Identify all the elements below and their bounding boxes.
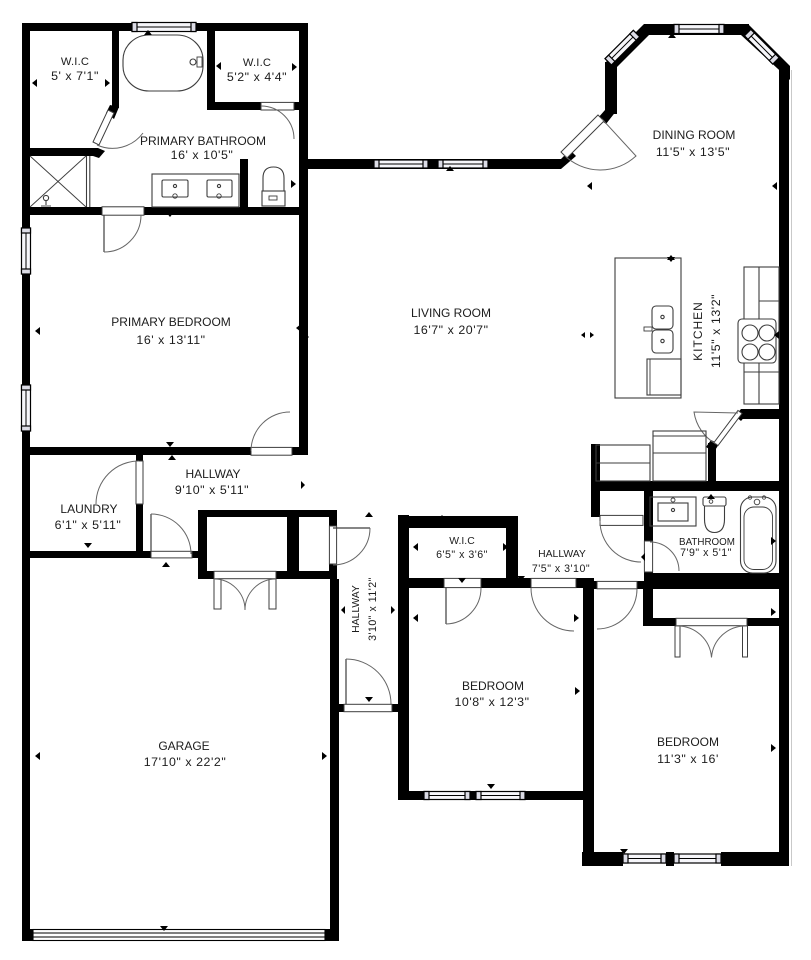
svg-text:W.I.C: W.I.C bbox=[243, 57, 271, 69]
svg-text:17'10" x 22'2": 17'10" x 22'2" bbox=[144, 755, 227, 769]
svg-text:16' x 10'5": 16' x 10'5" bbox=[171, 148, 234, 162]
svg-text:HALLWAY: HALLWAY bbox=[351, 585, 362, 633]
svg-text:BEDROOM: BEDROOM bbox=[657, 735, 719, 749]
svg-text:HALLWAY: HALLWAY bbox=[538, 549, 586, 560]
svg-text:16' x 13'11": 16' x 13'11" bbox=[136, 333, 205, 347]
svg-text:9'10" x 5'11": 9'10" x 5'11" bbox=[175, 483, 249, 497]
svg-text:KITCHEN: KITCHEN bbox=[691, 301, 705, 361]
svg-text:6'1" x 5'11": 6'1" x 5'11" bbox=[55, 518, 122, 532]
svg-text:LIVING ROOM: LIVING ROOM bbox=[411, 306, 491, 320]
svg-text:5' x 7'1": 5' x 7'1" bbox=[51, 69, 99, 83]
svg-text:PRIMARY BATHROOM: PRIMARY BATHROOM bbox=[140, 134, 266, 148]
svg-text:6'5" x 3'6": 6'5" x 3'6" bbox=[436, 549, 488, 561]
svg-text:11'5" x 13'2": 11'5" x 13'2" bbox=[709, 294, 723, 368]
svg-text:11'5" x 13'5": 11'5" x 13'5" bbox=[656, 145, 730, 159]
svg-text:W.I.C: W.I.C bbox=[61, 56, 89, 68]
svg-text:3'10" x 11'2": 3'10" x 11'2" bbox=[367, 577, 379, 641]
svg-text:11'3" x 16': 11'3" x 16' bbox=[657, 752, 719, 766]
svg-text:HALLWAY: HALLWAY bbox=[185, 467, 240, 481]
svg-text:DINING ROOM: DINING ROOM bbox=[653, 128, 736, 142]
svg-text:5'2" x 4'4": 5'2" x 4'4" bbox=[227, 70, 287, 84]
svg-text:16'7" x 20'7": 16'7" x 20'7" bbox=[413, 323, 488, 337]
svg-text:BEDROOM: BEDROOM bbox=[462, 679, 524, 693]
svg-text:10'8" x 12'3": 10'8" x 12'3" bbox=[454, 695, 529, 709]
svg-text:PRIMARY BEDROOM: PRIMARY BEDROOM bbox=[111, 315, 231, 329]
svg-text:LAUNDRY: LAUNDRY bbox=[60, 502, 117, 516]
svg-text:GARAGE: GARAGE bbox=[158, 739, 209, 753]
svg-text:7'9" x 5'1": 7'9" x 5'1" bbox=[680, 547, 732, 559]
svg-text:W.I.C: W.I.C bbox=[449, 536, 475, 547]
svg-text:7'5" x 3'10": 7'5" x 3'10" bbox=[532, 563, 590, 575]
